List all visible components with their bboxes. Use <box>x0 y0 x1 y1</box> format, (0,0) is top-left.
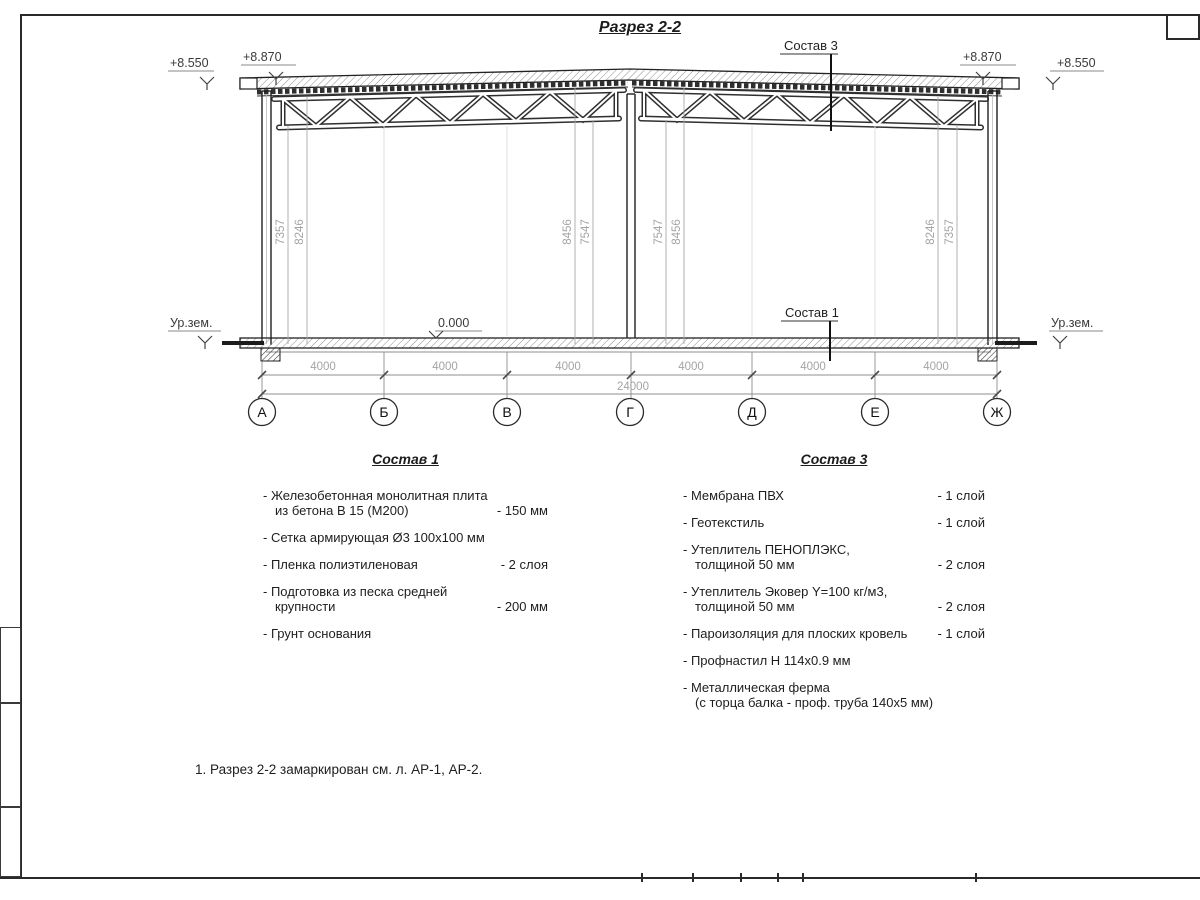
item-value: - 2 слоя <box>930 599 985 614</box>
item-text: - Утеплитель Эковер Y=100 кг/м3, толщино… <box>683 584 887 614</box>
titleblock-tick <box>641 873 643 882</box>
list-item: - Пленка полиэтиленовая - 2 слоя <box>263 557 548 572</box>
titleblock-tick <box>975 873 977 882</box>
vdim-label: 7547 <box>580 219 592 245</box>
item-value: - 2 слоя <box>493 557 548 572</box>
svg-text:+8.870: +8.870 <box>243 50 282 64</box>
ground-level-mark-left: Ур.зем. <box>168 316 221 349</box>
svg-text:Состав 3: Состав 3 <box>784 38 838 53</box>
item-value: - 1 слой <box>929 626 985 641</box>
sostav1-title: Состав 1 <box>263 452 548 467</box>
sheet-note: 1. Разрез 2-2 замаркирован см. л. АР-1, … <box>195 762 482 777</box>
svg-text:+8.550: +8.550 <box>170 56 209 70</box>
floor-slab <box>222 338 1037 361</box>
axis-label: А <box>257 404 267 420</box>
wall-right <box>988 91 997 345</box>
elevation-mark-left-outer: +8.550 <box>168 56 214 90</box>
axis-label: В <box>502 404 511 420</box>
roof-slab <box>240 69 1019 89</box>
titleblock-tick <box>740 873 742 882</box>
margin-cell <box>0 627 21 703</box>
svg-text:Ур.зем.: Ур.зем. <box>1051 316 1093 330</box>
eave-edge-left <box>240 78 257 89</box>
item-value: - 150 мм <box>489 503 548 518</box>
frame-bottom-border <box>0 877 1200 879</box>
wall-left <box>262 91 271 345</box>
bay-dim: 4000 <box>310 361 336 373</box>
list-item: - Профнастил Н 114х0.9 мм <box>683 653 985 668</box>
item-text: - Железобетонная монолитная плита из бет… <box>263 488 488 518</box>
bay-dim: 4000 <box>678 361 704 373</box>
dimension-row-total: 24000 <box>258 381 1001 398</box>
sostav3-title: Состав 3 <box>683 452 985 467</box>
bay-dim: 4000 <box>923 361 949 373</box>
vdim-label: 7357 <box>944 219 956 245</box>
item-value: - 2 слоя <box>930 557 985 572</box>
axis-label: Д <box>747 404 757 420</box>
section-view: 7357 8246 8456 7547 7547 8456 8246 7357 … <box>0 0 1200 450</box>
margin-cell <box>0 807 21 877</box>
axis-bubbles: А Б В Г Д Е Ж <box>249 399 1011 426</box>
item-text: - Геотекстиль <box>683 515 768 530</box>
bay-dim: 4000 <box>800 361 826 373</box>
item-text: - Утеплитель ПЕНОПЛЭКС, толщиной 50 мм <box>683 542 850 572</box>
foundation-left <box>261 348 280 361</box>
elevation-mark-right-outer: +8.550 <box>1046 56 1104 90</box>
item-text: - Подготовка из песка средней крупности <box>263 584 447 614</box>
svg-text:0.000: 0.000 <box>438 316 469 330</box>
list-item: - Подготовка из песка средней крупности … <box>263 584 548 614</box>
item-value: - 1 слой <box>929 488 985 503</box>
item-value: - 200 мм <box>489 599 548 614</box>
center-column <box>627 94 635 338</box>
sostav3-list: Состав 3 - Мембрана ПВХ - 1 слой - Геоте… <box>683 452 985 722</box>
titleblock-tick <box>692 873 694 882</box>
item-text: - Металлическая ферма (с торца балка - п… <box>683 680 933 710</box>
axis-label: Е <box>870 404 879 420</box>
list-item: - Железобетонная монолитная плита из бет… <box>263 488 548 518</box>
list-item: - Пароизоляция для плоских кровель - 1 с… <box>683 626 985 641</box>
item-text: - Сетка армирующая Ø3 100x100 мм <box>263 530 485 545</box>
svg-text:Состав 1: Состав 1 <box>785 305 839 320</box>
foundation-right <box>978 348 997 361</box>
item-text: - Грунт основания <box>263 626 371 641</box>
drawing-sheet: Разрез 2-2 <box>0 0 1200 900</box>
list-item: - Утеплитель ПЕНОПЛЭКС, толщиной 50 мм -… <box>683 542 985 572</box>
vdim-label: 8246 <box>294 219 306 245</box>
truss-left <box>274 90 624 128</box>
list-item: - Утеплитель Эковер Y=100 кг/м3, толщино… <box>683 584 985 614</box>
truss-right <box>636 90 986 128</box>
svg-text:+8.550: +8.550 <box>1057 56 1096 70</box>
svg-text:Ур.зем.: Ур.зем. <box>170 316 212 330</box>
svg-text:+8.870: +8.870 <box>963 50 1002 64</box>
item-text: - Мембрана ПВХ <box>683 488 784 503</box>
dimension-row-bays: 4000 4000 4000 4000 4000 4000 <box>258 361 1001 379</box>
floor-level-mark: 0.000 <box>429 316 482 338</box>
list-item: - Грунт основания <box>263 626 548 641</box>
eave-edge-right <box>1002 78 1019 89</box>
axis-label: Г <box>626 404 634 420</box>
ground-level-mark-right: Ур.зем. <box>1049 316 1103 349</box>
axis-label: Ж <box>991 404 1004 420</box>
list-item: - Металлическая ферма (с торца балка - п… <box>683 680 985 710</box>
bay-dim: 4000 <box>432 361 458 373</box>
titleblock-tick <box>802 873 804 882</box>
vdim-label: 8456 <box>671 219 683 245</box>
vdim-label: 7547 <box>653 219 665 245</box>
item-text: - Пароизоляция для плоских кровель <box>683 626 907 641</box>
list-item: - Геотекстиль - 1 слой <box>683 515 985 530</box>
vdim-label: 7357 <box>275 219 287 245</box>
margin-cell <box>0 703 21 807</box>
list-item: - Мембрана ПВХ - 1 слой <box>683 488 985 503</box>
leader-sostav1: Состав 1 <box>781 305 839 361</box>
bay-dim: 4000 <box>555 361 581 373</box>
vdim-label: 8456 <box>562 219 574 245</box>
list-item: - Сетка армирующая Ø3 100x100 мм <box>263 530 548 545</box>
item-value: - 1 слой <box>929 515 985 530</box>
total-dim: 24000 <box>617 381 649 393</box>
vdim-label: 8246 <box>925 219 937 245</box>
axis-label: Б <box>379 404 388 420</box>
item-text: - Профнастил Н 114х0.9 мм <box>683 653 851 668</box>
sostav1-list: Состав 1 - Железобетонная монолитная пли… <box>263 452 548 653</box>
titleblock-tick <box>777 873 779 882</box>
item-text: - Пленка полиэтиленовая <box>263 557 418 572</box>
